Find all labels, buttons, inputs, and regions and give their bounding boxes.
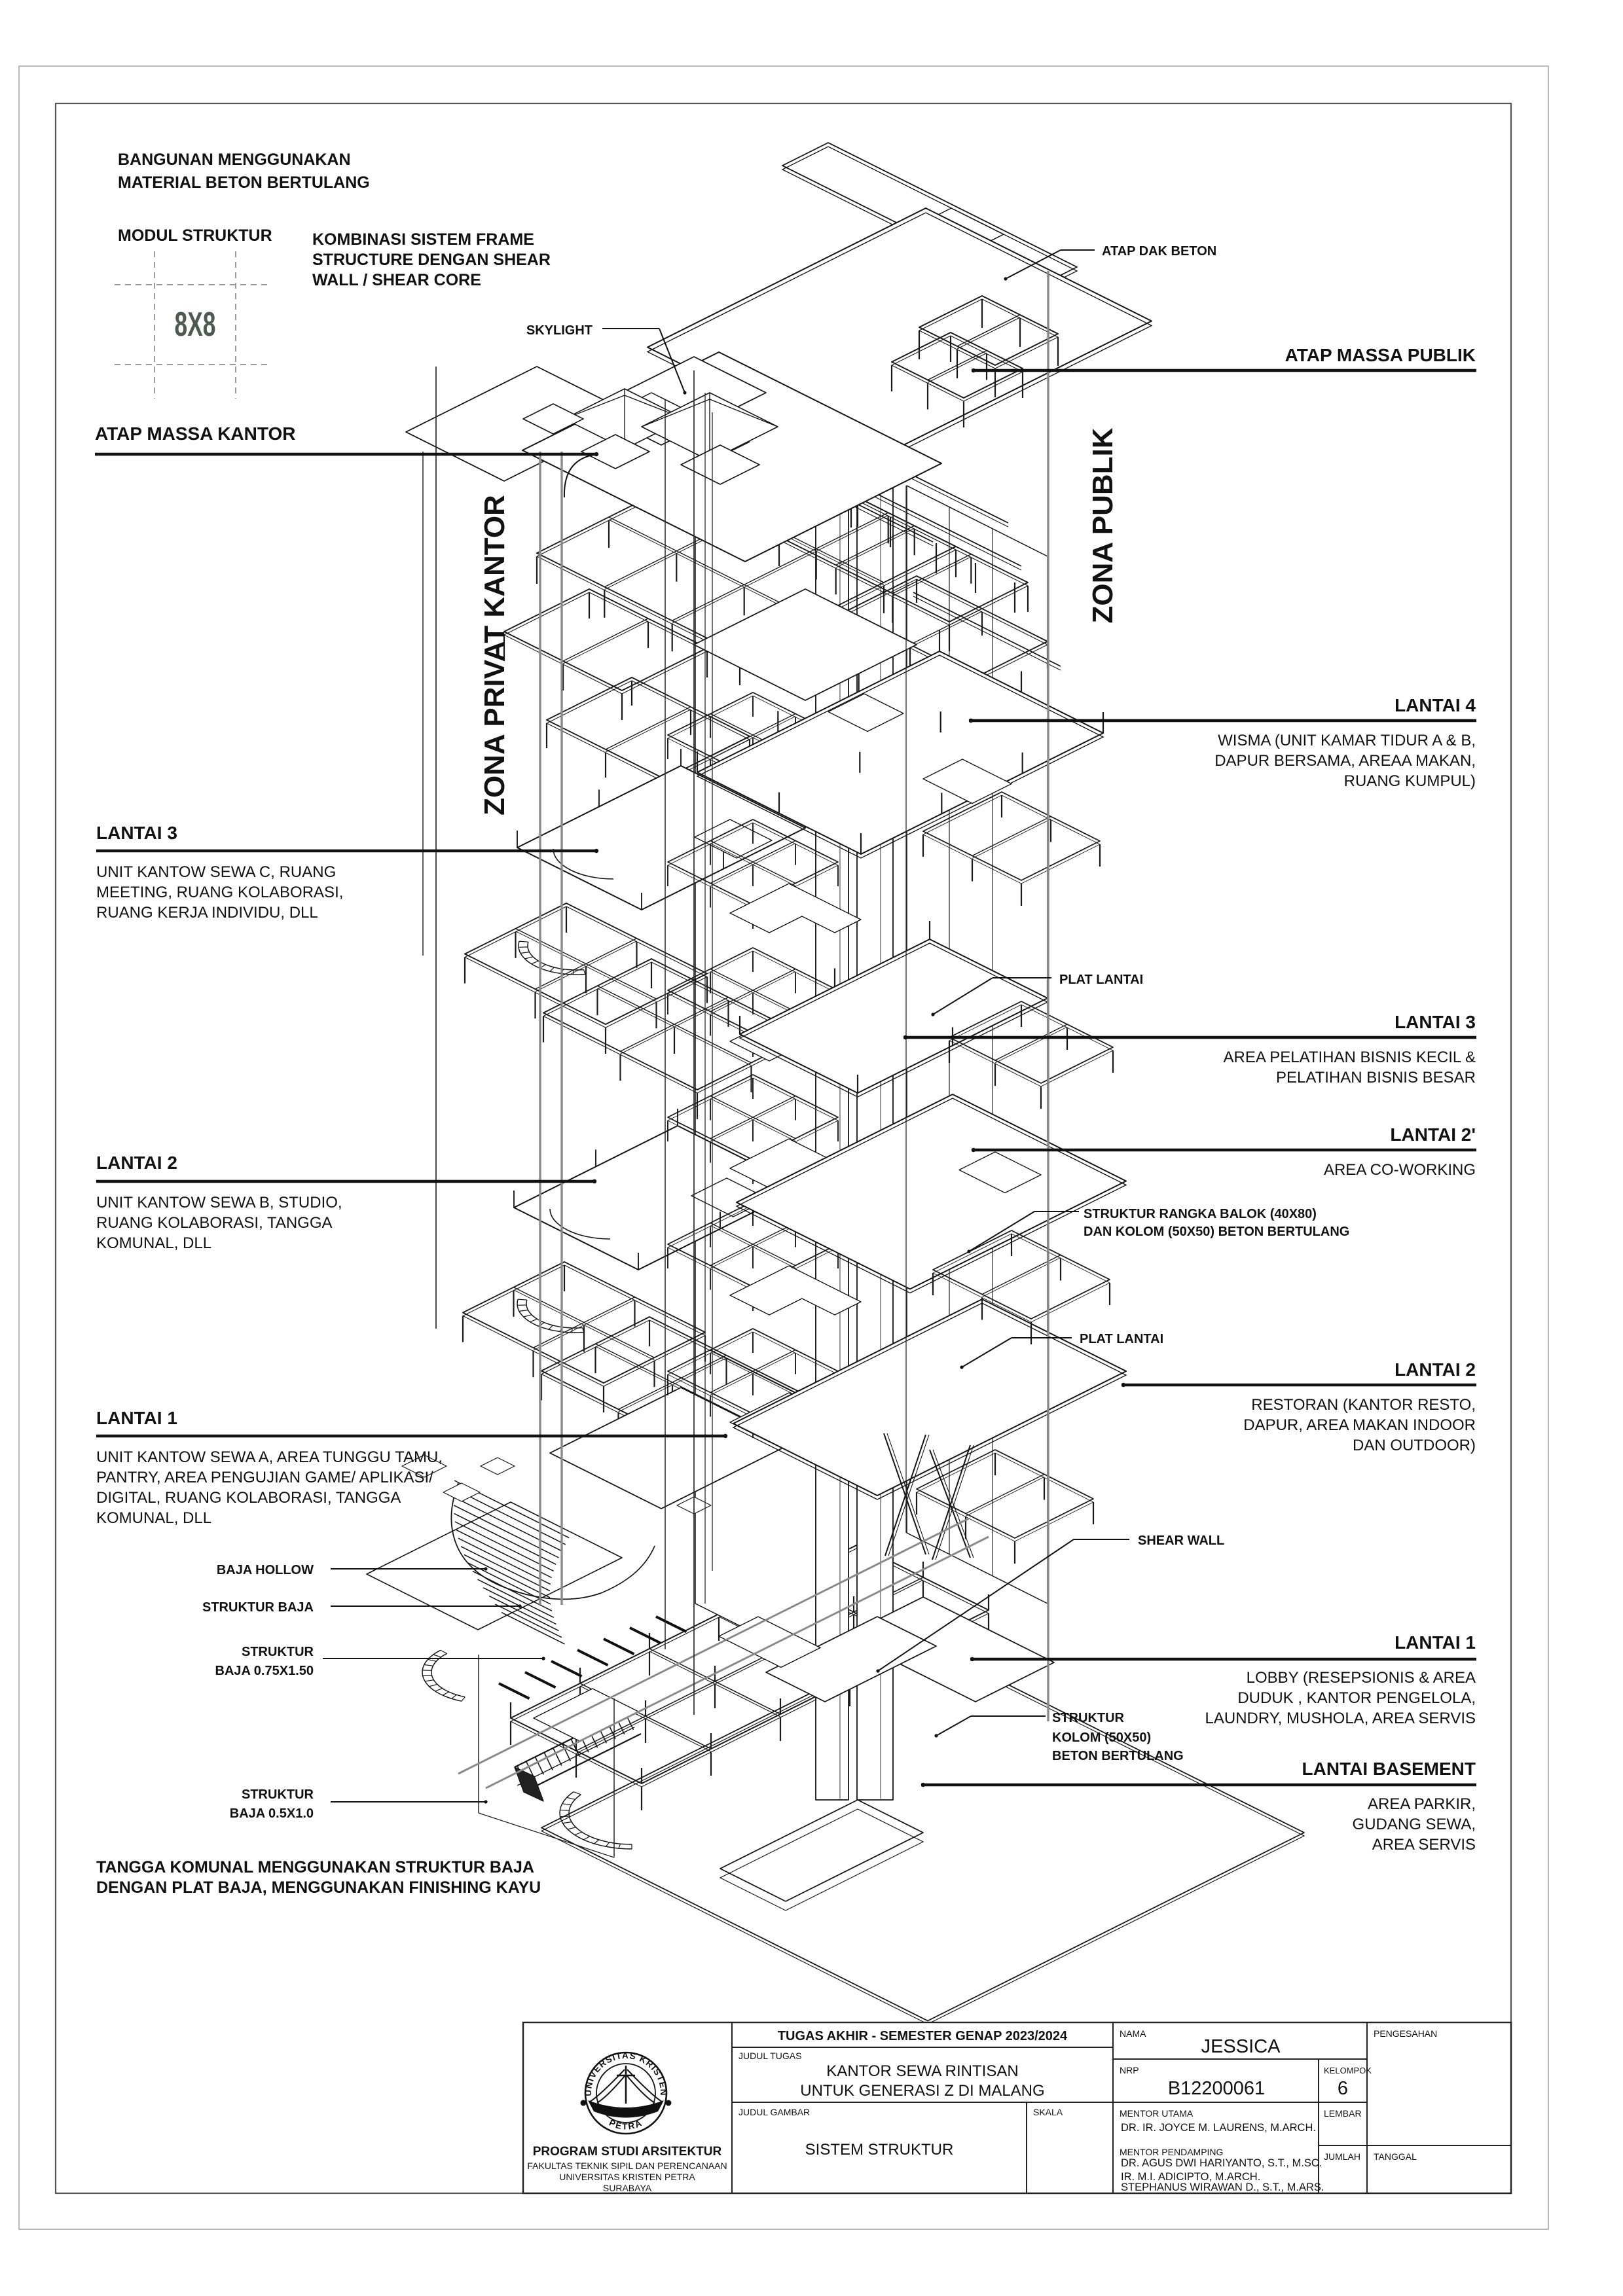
svg-text:UNIT KANTOW SEWA B, STUDIO,: UNIT KANTOW SEWA B, STUDIO,	[96, 1194, 342, 1211]
svg-text:STRUKTUR RANGKA BALOK (40X80): STRUKTUR RANGKA BALOK (40X80)	[1084, 1207, 1317, 1221]
svg-text:UNIVERSITAS KRISTEN PETRA: UNIVERSITAS KRISTEN PETRA	[559, 2172, 695, 2182]
svg-text:DR. AGUS DWI HARIYANTO, S.T.,: DR. AGUS DWI HARIYANTO, S.T., M.SC.	[1121, 2157, 1322, 2169]
svg-text:DAN KOLOM (50X50) BETON BERTUL: DAN KOLOM (50X50) BETON BERTULANG	[1084, 1225, 1349, 1239]
svg-text:TUGAS AKHIR - SEMESTER GENAP 2: TUGAS AKHIR - SEMESTER GENAP 2023/2024	[778, 2029, 1068, 2043]
svg-text:FAKULTAS TEKNIK SIPIL DAN PERE: FAKULTAS TEKNIK SIPIL DAN PERENCANAAN	[527, 2161, 727, 2171]
svg-text:AREA CO-WORKING: AREA CO-WORKING	[1324, 1161, 1476, 1179]
svg-text:AREA SERVIS: AREA SERVIS	[1372, 1836, 1476, 1854]
svg-text:DIGITAL, RUANG KOLABORASI, TAN: DIGITAL, RUANG KOLABORASI, TANGGA	[96, 1489, 401, 1507]
svg-text:KOMBINASI SISTEM FRAME: KOMBINASI SISTEM FRAME	[312, 230, 534, 249]
svg-text:LANTAI 1: LANTAI 1	[1395, 1632, 1476, 1653]
svg-text:MENTOR PENDAMPING: MENTOR PENDAMPING	[1120, 2147, 1223, 2157]
svg-text:STRUKTUR: STRUKTUR	[242, 1645, 314, 1659]
svg-text:LEMBAR: LEMBAR	[1324, 2108, 1362, 2119]
svg-text:LANTAI 2': LANTAI 2'	[1390, 1124, 1476, 1145]
svg-text:TANGGAL: TANGGAL	[1374, 2151, 1417, 2162]
svg-text:LAUNDRY, MUSHOLA, AREA SERVIS: LAUNDRY, MUSHOLA, AREA SERVIS	[1205, 1710, 1476, 1727]
svg-text:SHEAR WALL: SHEAR WALL	[1138, 1534, 1224, 1548]
svg-text:RUANG KERJA INDIVIDU, DLL: RUANG KERJA INDIVIDU, DLL	[96, 904, 318, 922]
svg-text:ZONA PUBLIK: ZONA PUBLIK	[1087, 427, 1119, 623]
svg-text:MATERIAL BETON BERTULANG: MATERIAL BETON BERTULANG	[118, 173, 370, 192]
svg-text:SKYLIGHT: SKYLIGHT	[526, 323, 593, 338]
svg-text:LANTAI 3: LANTAI 3	[96, 823, 177, 843]
svg-text:JUDUL TUGAS: JUDUL TUGAS	[739, 2051, 801, 2061]
svg-text:WISMA (UNIT KAMAR TIDUR A & B,: WISMA (UNIT KAMAR TIDUR A & B,	[1218, 732, 1476, 749]
svg-text:8X8: 8X8	[175, 306, 216, 343]
svg-text:PLAT LANTAI: PLAT LANTAI	[1059, 973, 1143, 987]
svg-text:LANTAI 4: LANTAI 4	[1395, 695, 1476, 715]
svg-text:RESTORAN (KANTOR RESTO,: RESTORAN (KANTOR RESTO,	[1251, 1396, 1476, 1414]
svg-text:DENGAN PLAT BAJA, MENGGUNAKAN: DENGAN PLAT BAJA, MENGGUNAKAN FINISHING …	[96, 1878, 541, 1897]
svg-text:SISTEM STRUKTUR: SISTEM STRUKTUR	[805, 2141, 954, 2159]
svg-text:BANGUNAN MENGGUNAKAN: BANGUNAN MENGGUNAKAN	[118, 151, 351, 169]
svg-text:MODUL STRUKTUR: MODUL STRUKTUR	[118, 226, 272, 245]
svg-text:JUMLAH: JUMLAH	[1324, 2151, 1360, 2162]
svg-text:DAPUR, AREA MAKAN INDOOR: DAPUR, AREA MAKAN INDOOR	[1243, 1416, 1476, 1434]
svg-text:UNIT KANTOW SEWA A, AREA TUNGG: UNIT KANTOW SEWA A, AREA TUNGGU TAMU,	[96, 1448, 443, 1466]
svg-text:BAJA HOLLOW: BAJA HOLLOW	[217, 1563, 314, 1577]
svg-text:STRUKTUR: STRUKTUR	[1052, 1711, 1125, 1725]
svg-text:LANTAI BASEMENT: LANTAI BASEMENT	[1302, 1759, 1476, 1779]
svg-text:PELATIHAN BISNIS BESAR: PELATIHAN BISNIS BESAR	[1276, 1069, 1476, 1086]
svg-text:RUANG KUMPUL): RUANG KUMPUL)	[1344, 772, 1476, 790]
svg-text:TANGGA KOMUNAL MENGGUNAKAN STR: TANGGA KOMUNAL MENGGUNAKAN STRUKTUR BAJA	[96, 1858, 534, 1876]
svg-text:DUDUK , KANTOR PENGELOLA,: DUDUK , KANTOR PENGELOLA,	[1237, 1689, 1476, 1707]
svg-text:KELOMPOK: KELOMPOK	[1324, 2066, 1372, 2075]
svg-text:AREA PARKIR,: AREA PARKIR,	[1368, 1795, 1476, 1813]
svg-text:STRUCTURE DENGAN SHEAR: STRUCTURE DENGAN SHEAR	[312, 251, 551, 269]
svg-text:ATAP DAK BETON: ATAP DAK BETON	[1102, 244, 1216, 259]
svg-text:ZONA PRIVAT KANTOR: ZONA PRIVAT KANTOR	[479, 495, 511, 816]
svg-text:PENGESAHAN: PENGESAHAN	[1374, 2028, 1437, 2039]
svg-text:JUDUL GAMBAR: JUDUL GAMBAR	[739, 2107, 810, 2117]
svg-text:BETON BERTULANG: BETON BERTULANG	[1052, 1749, 1184, 1763]
svg-text:PANTRY, AREA PENGUJIAN GAME/ A: PANTRY, AREA PENGUJIAN GAME/ APLIKASI/	[96, 1469, 433, 1486]
svg-text:MEETING, RUANG KOLABORASI,: MEETING, RUANG KOLABORASI,	[96, 884, 343, 901]
svg-text:STEPHANUS WIRAWAN D., S.T., M.: STEPHANUS WIRAWAN D., S.T., M.ARS.	[1121, 2181, 1324, 2193]
svg-text:PROGRAM STUDI ARSITEKTUR: PROGRAM STUDI ARSITEKTUR	[533, 2145, 722, 2159]
svg-text:KOMUNAL, DLL: KOMUNAL, DLL	[96, 1234, 211, 1252]
svg-text:LANTAI 1: LANTAI 1	[96, 1408, 177, 1428]
svg-text:UNTUK GENERASI Z DI MALANG: UNTUK GENERASI Z DI MALANG	[800, 2082, 1044, 2100]
svg-text:LOBBY (RESEPSIONIS & AREA: LOBBY (RESEPSIONIS & AREA	[1247, 1669, 1476, 1687]
svg-text:DAPUR BERSAMA, AREAA MAKAN,: DAPUR BERSAMA, AREAA MAKAN,	[1214, 752, 1476, 770]
svg-text:JESSICA: JESSICA	[1201, 2036, 1281, 2057]
svg-text:LANTAI 2: LANTAI 2	[96, 1153, 177, 1173]
svg-text:RUANG KOLABORASI, TANGGA: RUANG KOLABORASI, TANGGA	[96, 1214, 333, 1232]
svg-text:PLAT LANTAI: PLAT LANTAI	[1080, 1332, 1163, 1346]
svg-text:GUDANG SEWA,: GUDANG SEWA,	[1353, 1816, 1476, 1833]
svg-text:B12200061: B12200061	[1168, 2078, 1265, 2099]
svg-text:ATAP MASSA PUBLIK: ATAP MASSA PUBLIK	[1285, 345, 1476, 365]
svg-text:SKALA: SKALA	[1033, 2107, 1063, 2117]
svg-text:SURABAYA: SURABAYA	[603, 2183, 652, 2193]
svg-text:DAN OUTDOOR): DAN OUTDOOR)	[1353, 1437, 1476, 1454]
svg-text:STRUKTUR BAJA: STRUKTUR BAJA	[202, 1600, 314, 1615]
svg-text:MENTOR UTAMA: MENTOR UTAMA	[1120, 2108, 1194, 2119]
svg-text:STRUKTUR: STRUKTUR	[242, 1787, 314, 1802]
svg-text:KOMUNAL, DLL: KOMUNAL, DLL	[96, 1509, 211, 1527]
svg-text:AREA PELATIHAN BISNIS KECIL &: AREA PELATIHAN BISNIS KECIL &	[1224, 1049, 1476, 1066]
svg-text:6: 6	[1338, 2078, 1348, 2099]
svg-text:WALL / SHEAR CORE: WALL / SHEAR CORE	[312, 271, 481, 289]
svg-text:KANTOR SEWA RINTISAN: KANTOR SEWA RINTISAN	[826, 2062, 1018, 2080]
svg-text:DR. IR. JOYCE M. LAURENS, M.AR: DR. IR. JOYCE M. LAURENS, M.ARCH.	[1121, 2122, 1316, 2134]
svg-text:LANTAI 2: LANTAI 2	[1395, 1359, 1476, 1380]
svg-text:KOLOM (50X50): KOLOM (50X50)	[1052, 1731, 1151, 1745]
svg-text:BAJA 0.5X1.0: BAJA 0.5X1.0	[230, 1806, 314, 1821]
svg-text:NAMA: NAMA	[1120, 2028, 1146, 2039]
svg-text:LANTAI 3: LANTAI 3	[1395, 1012, 1476, 1032]
svg-text:ATAP MASSA KANTOR: ATAP MASSA KANTOR	[95, 423, 295, 444]
svg-text:UNIT KANTOW SEWA C, RUANG: UNIT KANTOW SEWA C, RUANG	[96, 863, 336, 881]
svg-text:BAJA 0.75X1.50: BAJA 0.75X1.50	[215, 1664, 314, 1678]
svg-text:NRP: NRP	[1120, 2065, 1139, 2075]
